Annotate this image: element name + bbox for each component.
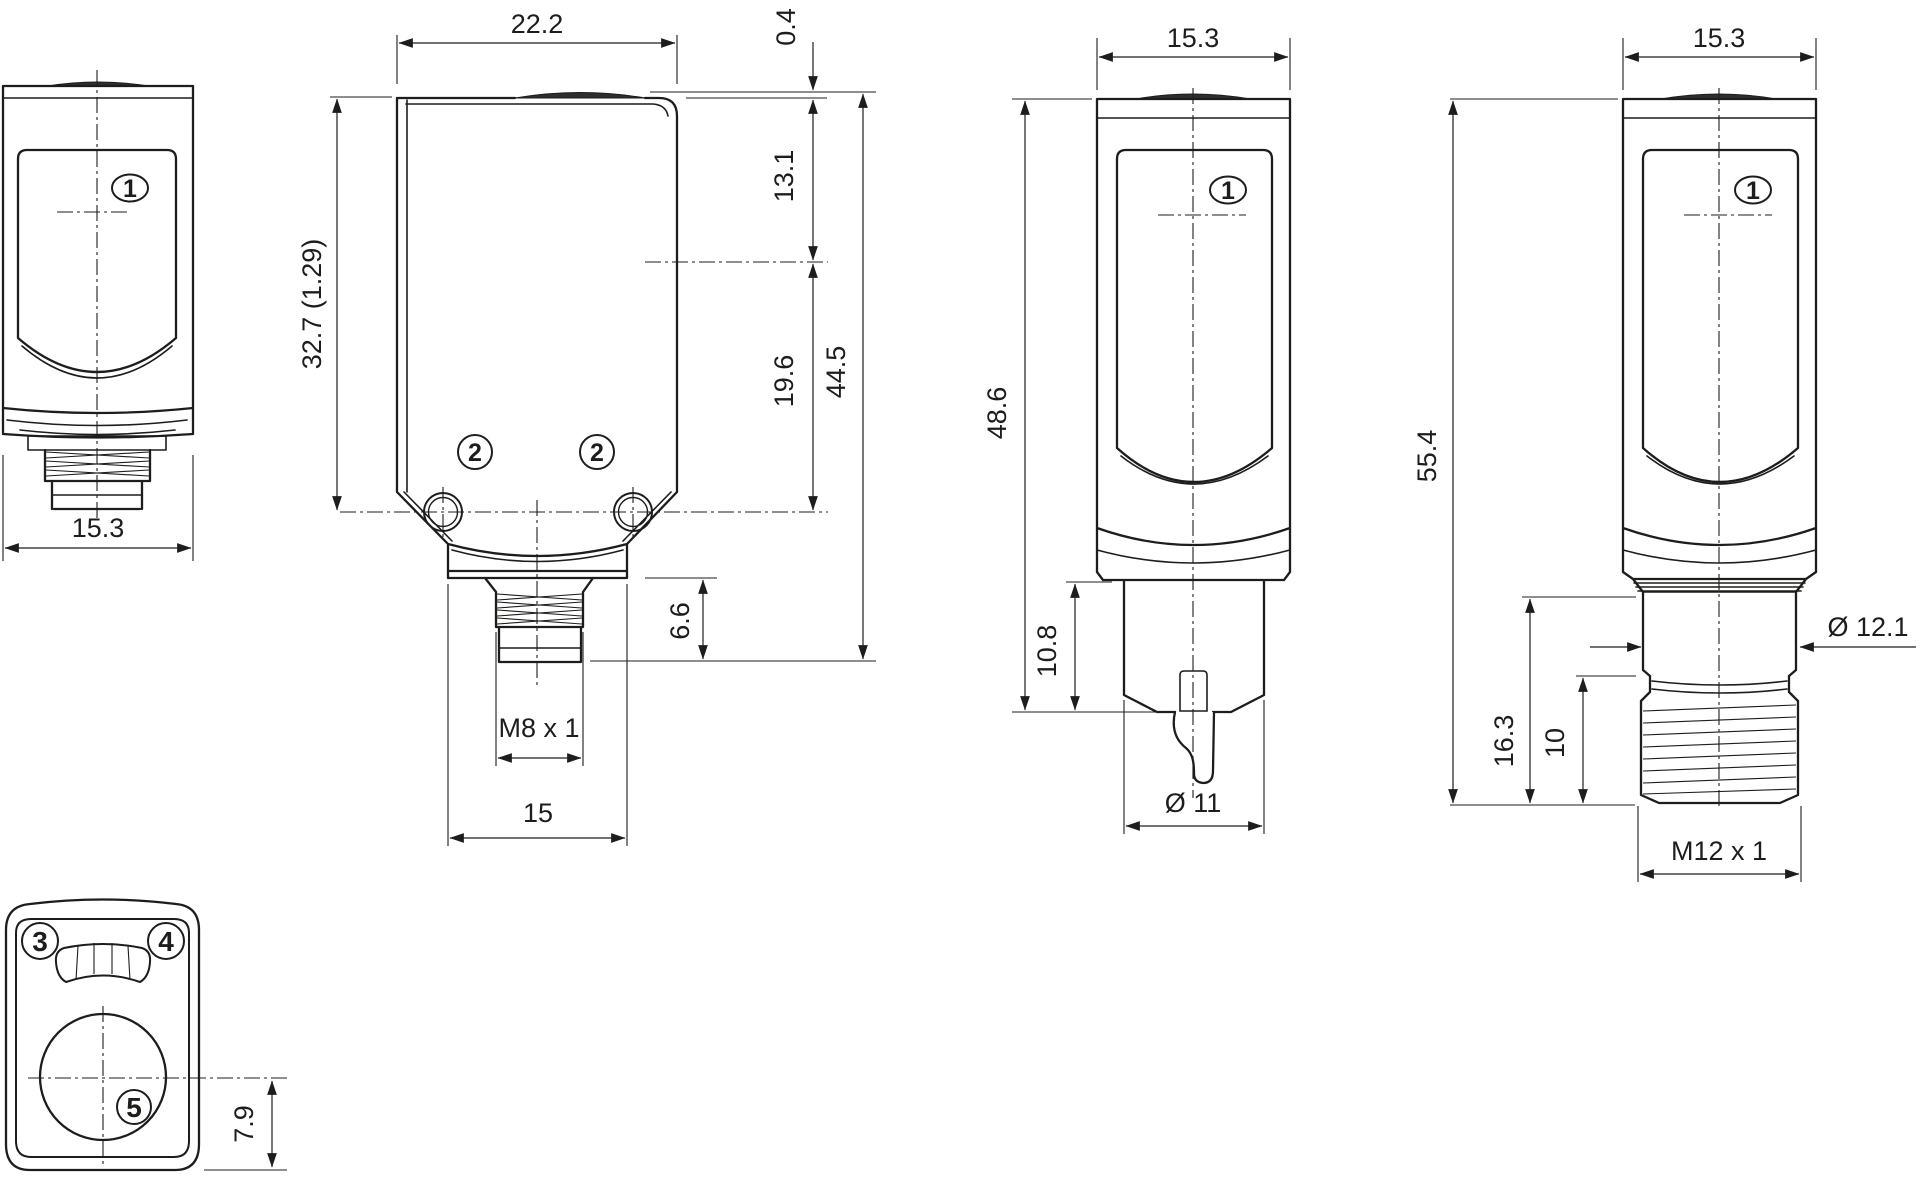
dim-overall-height-label: 55.4 bbox=[1412, 430, 1442, 483]
indicator-window-dividers bbox=[76, 943, 130, 980]
dim-shoulder-width-label: 15 bbox=[523, 798, 553, 828]
dim-thread-label: M8 x 1 bbox=[498, 713, 579, 743]
dimensional-drawing-page: 1 15.3 2 2 22.2 32.7 (1.29) 0.4 13.1 19.… bbox=[0, 0, 1920, 1182]
view-side-cable-gland: 1 15.3 48.6 10.8 Ø 11 bbox=[982, 23, 1290, 834]
callout-5-label: 5 bbox=[126, 1092, 142, 1123]
view-side-m12: 1 15.3 55.4 16.3 10 Ø 12.1 M12 x 1 bbox=[1412, 23, 1916, 882]
dim-connector-height-label: 16.3 bbox=[1489, 715, 1519, 768]
dim-axis-to-holes-label: 19.6 bbox=[769, 355, 799, 408]
cable-tail bbox=[1174, 712, 1214, 783]
dim-connector-height-label: 6.6 bbox=[665, 602, 695, 640]
dim-body-height-label: 32.7 (1.29) bbox=[297, 239, 327, 370]
thread-lines bbox=[497, 594, 582, 624]
dim-thread-length-label: 10 bbox=[1540, 728, 1570, 758]
callout-1-label: 1 bbox=[1746, 177, 1760, 205]
body-outline bbox=[3, 86, 193, 509]
dim-top-to-axis-label: 13.1 bbox=[769, 150, 799, 203]
callout-4-label: 4 bbox=[158, 926, 174, 957]
dim-thread-label: M12 x 1 bbox=[1671, 836, 1767, 866]
dim-overall-height-label: 44.5 bbox=[821, 346, 851, 399]
callout-3-label: 3 bbox=[32, 926, 48, 957]
dim-gland-height-label: 10.8 bbox=[1032, 625, 1062, 678]
dim-overall-height-label: 48.6 bbox=[982, 387, 1012, 440]
callout-1-label: 1 bbox=[1221, 177, 1235, 205]
callout-2-right-label: 2 bbox=[590, 439, 604, 467]
view-bottom: 3 4 5 7.9 bbox=[6, 900, 287, 1171]
dim-width-label: 15.3 bbox=[1693, 23, 1746, 53]
dim-gland-diameter-label: Ø 11 bbox=[1165, 788, 1222, 818]
body-outline bbox=[397, 98, 677, 662]
dim-collar-diameter-label: Ø 12.1 bbox=[1827, 612, 1908, 642]
lens-bump bbox=[515, 93, 645, 99]
dim-axis-to-bottom-label: 7.9 bbox=[229, 1105, 259, 1143]
extension-lines bbox=[1012, 38, 1290, 834]
callout-2-left-label: 2 bbox=[468, 439, 482, 467]
dim-width-label: 22.2 bbox=[511, 9, 564, 39]
dim-width-label: 15.3 bbox=[1167, 23, 1220, 53]
callout-1-label: 1 bbox=[123, 175, 137, 203]
sensor-dimensional-drawing: 1 15.3 2 2 22.2 32.7 (1.29) 0.4 13.1 19.… bbox=[0, 0, 1920, 1182]
dim-width-label: 15.3 bbox=[72, 513, 125, 543]
indicator-window bbox=[56, 944, 150, 982]
dim-lens-protrusion-label: 0.4 bbox=[771, 8, 801, 46]
view-side-m8: 1 15.3 bbox=[3, 70, 193, 561]
view-front-m8: 2 2 22.2 32.7 (1.29) 0.4 13.1 19.6 44.5 … bbox=[297, 8, 876, 846]
body-detail-lines bbox=[3, 98, 193, 495]
